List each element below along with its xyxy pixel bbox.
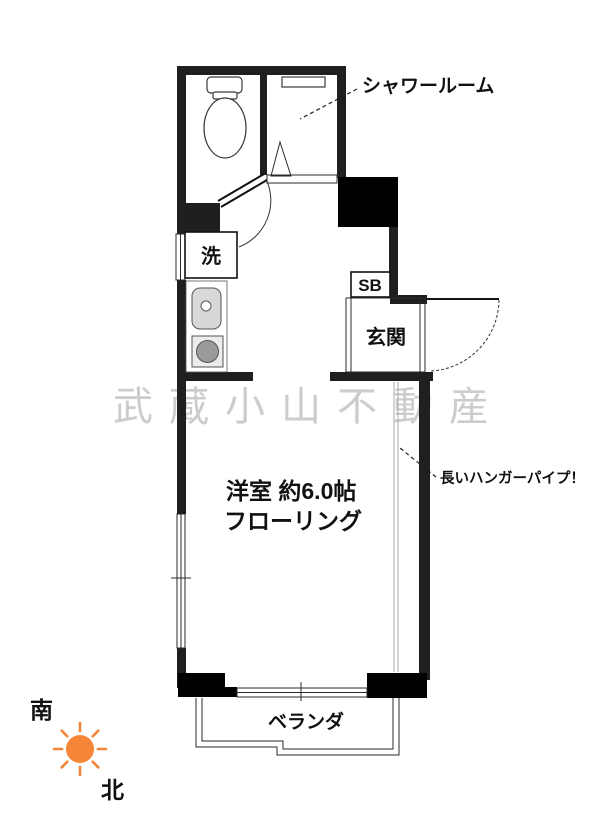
- south-label: 南: [30, 697, 53, 723]
- shower-room-label: シャワールーム: [362, 76, 494, 97]
- wall-left-upper: [177, 66, 186, 234]
- watermark-text: 武蔵小山不動産: [113, 384, 505, 429]
- compass: 南 北: [30, 697, 124, 803]
- room-size-label: 洋室 約6.0帖: [226, 478, 356, 504]
- walls: [177, 66, 433, 688]
- wall-toilet-corner-block: [185, 203, 220, 232]
- sink-icon: [192, 288, 221, 329]
- wall-right-main: [419, 380, 430, 680]
- entrance-area: 玄関: [346, 298, 425, 372]
- wall-entrance-top: [390, 295, 427, 304]
- balcony-window: [237, 682, 367, 701]
- veranda-label: ベランダ: [268, 710, 344, 733]
- west-window: [171, 514, 191, 648]
- room-floor-label: フローリング: [224, 508, 362, 534]
- shower-room: [267, 77, 337, 183]
- wall-right-sb: [389, 227, 398, 273]
- washer-box: 洗: [185, 232, 237, 278]
- sun-icon: [54, 723, 106, 775]
- shower-vent: [282, 77, 325, 87]
- wall-kitchen-bottom: [177, 372, 253, 381]
- shower-door-triangle: [271, 142, 291, 176]
- floorplan-drawing: 武蔵小山不動産: [0, 0, 610, 814]
- wall-left-mid: [177, 280, 186, 514]
- kitchen-unit: [186, 281, 227, 372]
- wall-toilet-divider: [260, 75, 267, 175]
- pillar-bottom-right: [367, 673, 427, 698]
- pillar-bottom-left: [178, 673, 237, 697]
- main-room-label: 洋室 約6.0帖 フローリング: [224, 478, 362, 534]
- stove-icon: [192, 336, 223, 367]
- wall-right-upper: [337, 66, 346, 178]
- pillar-mid: [338, 177, 398, 227]
- shoebox: SB: [351, 272, 390, 297]
- wall-entrance-bottom: [330, 372, 433, 381]
- floorplan-canvas: 武蔵小山不動産: [0, 0, 610, 814]
- entrance-label: 玄関: [366, 325, 406, 349]
- hanger-leader-line: [400, 448, 436, 477]
- shoebox-label: SB: [358, 276, 382, 295]
- hanger-pipe-label: 長いハンガーパイプ！: [440, 470, 585, 487]
- shower-leader-line: [300, 89, 357, 119]
- entrance-door-icon: [427, 299, 499, 371]
- washer-label: 洗: [201, 245, 221, 268]
- north-label: 北: [101, 777, 124, 803]
- wall-top: [178, 66, 346, 75]
- toilet-icon: [204, 77, 246, 158]
- wall-sb-side: [390, 272, 398, 298]
- washer-window: [176, 234, 185, 280]
